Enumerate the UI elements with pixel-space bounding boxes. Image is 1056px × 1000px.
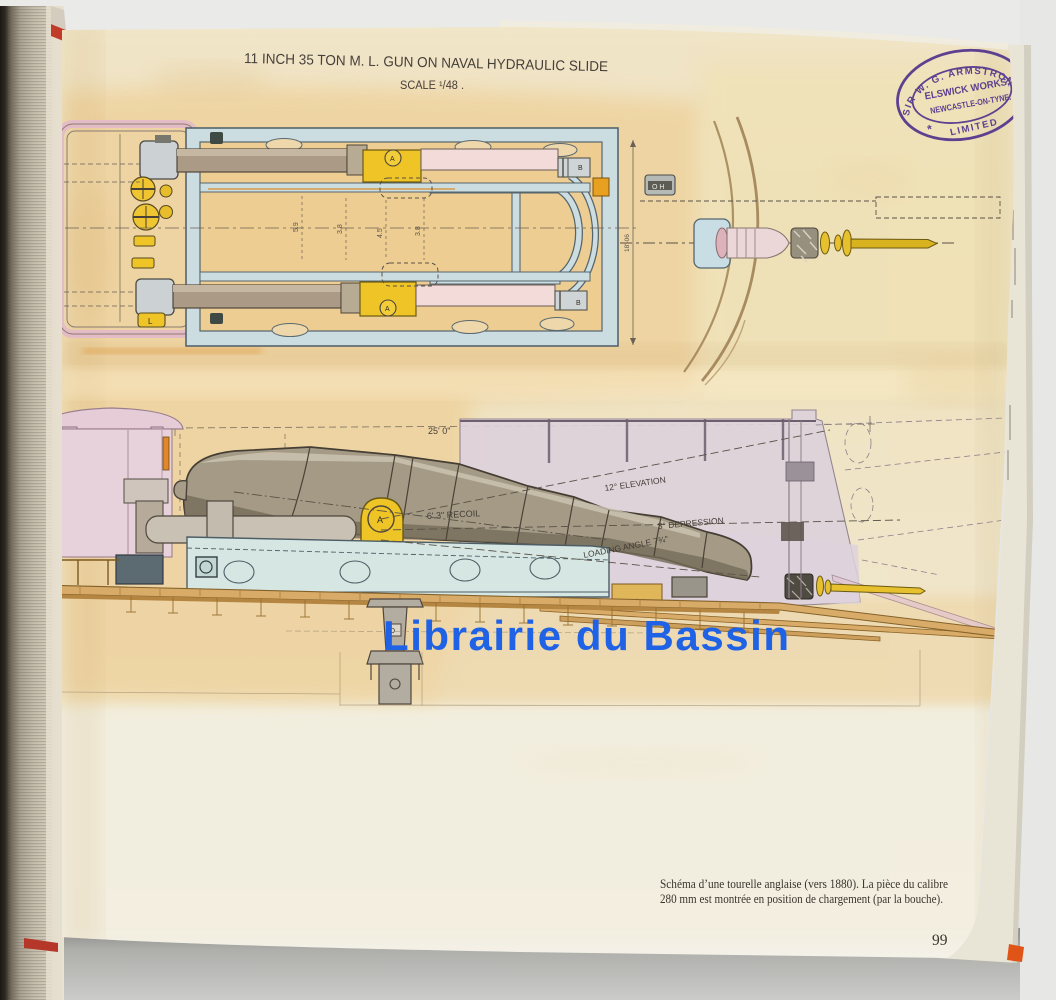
- svg-text:5.9: 5.9: [293, 222, 300, 232]
- svg-text:Librairie du Bassin: Librairie du Bassin: [383, 612, 789, 659]
- svg-text:A: A: [377, 515, 383, 525]
- svg-text:280 mm est montrée en position: 280 mm est montrée en position de charge…: [660, 891, 943, 906]
- svg-text:O H: O H: [652, 184, 664, 191]
- svg-text:4.5: 4.5: [377, 228, 384, 238]
- svg-text:A: A: [385, 306, 390, 313]
- svg-text:99: 99: [932, 932, 948, 949]
- svg-text:3.8: 3.8: [337, 224, 344, 234]
- svg-text:25' 0": 25' 0": [428, 426, 450, 436]
- svg-text:3.8: 3.8: [415, 226, 422, 236]
- svg-text:B: B: [578, 165, 583, 172]
- svg-text:Schéma d’une tourelle anglaise: Schéma d’une tourelle anglaise (vers 188…: [660, 876, 948, 891]
- svg-text:A: A: [390, 156, 395, 163]
- svg-text:B: B: [576, 300, 581, 307]
- svg-text:SCALE ¹/48 .: SCALE ¹/48 .: [400, 80, 464, 92]
- svg-text:L: L: [148, 317, 153, 326]
